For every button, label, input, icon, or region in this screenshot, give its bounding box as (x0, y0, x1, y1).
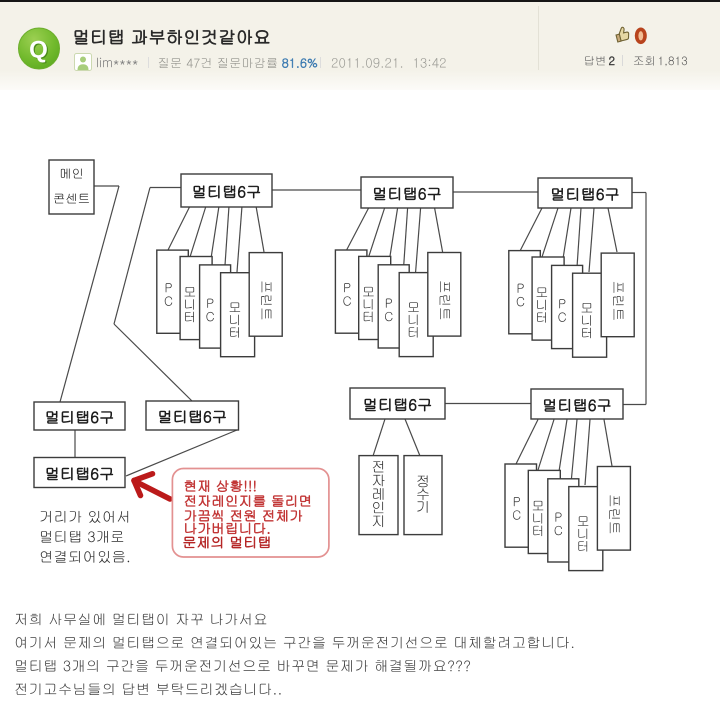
svg-text:Q: Q (29, 37, 48, 64)
